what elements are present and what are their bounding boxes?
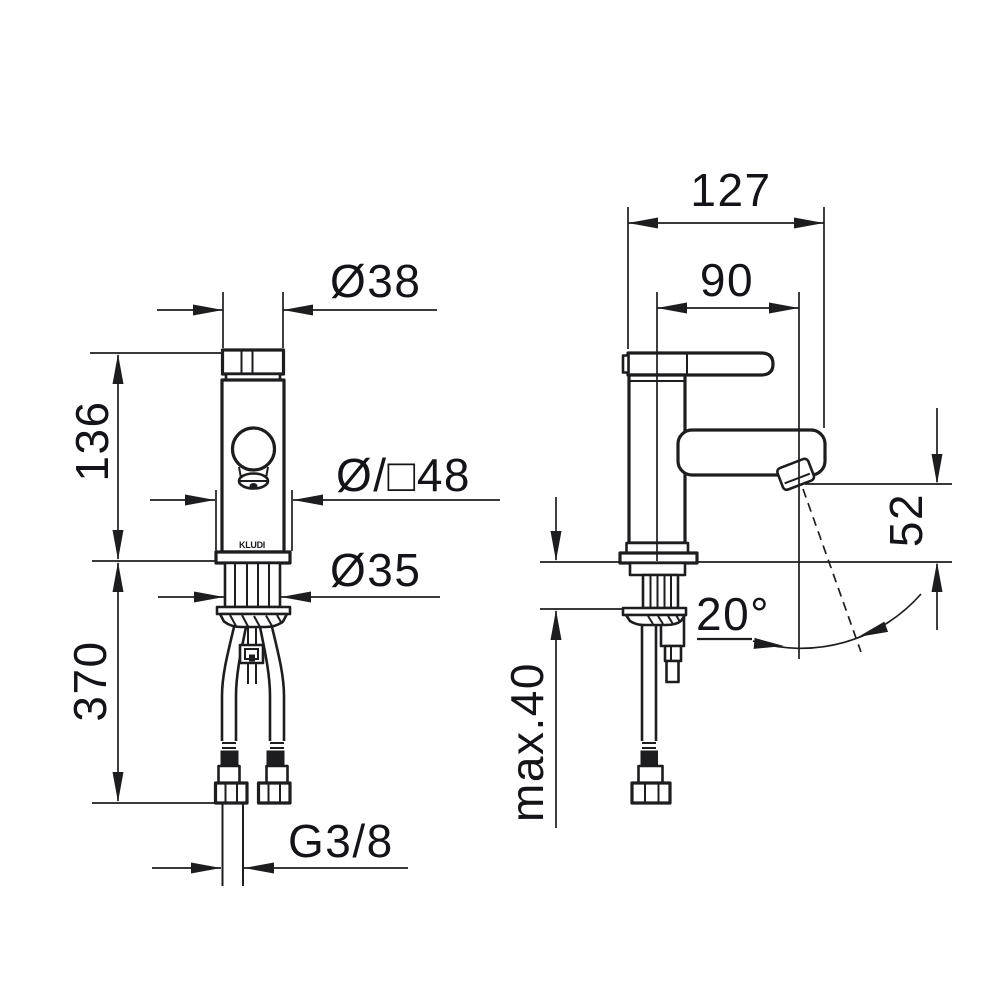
dimension-label: Ø38: [330, 255, 421, 307]
valve-stud-notch: [250, 655, 255, 661]
arrowhead: [113, 562, 124, 592]
threaded-shank-side: [643, 575, 678, 608]
arrowhead: [794, 218, 824, 229]
hose-crimp-band: [221, 751, 238, 766]
brand-logo: KLUDI: [239, 540, 265, 550]
technical-drawing: KLUDI: [0, 0, 1000, 1000]
arrowhead: [932, 562, 943, 592]
hose-crimp-band: [641, 751, 658, 766]
arrowhead: [193, 305, 223, 316]
hose-connector: [219, 766, 240, 783]
dim-upper-height: 136: [66, 353, 221, 561]
dimension-label: 20°: [696, 588, 770, 640]
arrowhead: [932, 454, 943, 484]
arrowhead: [283, 305, 313, 316]
hex-nut: [259, 783, 291, 803]
dimension-label: Ø/□48: [336, 449, 471, 501]
arrowhead: [113, 530, 124, 560]
dim-spout-reach: 90: [657, 254, 799, 314]
angle-arc: [753, 594, 921, 648]
dim-cap-diameter: Ø38: [157, 255, 437, 348]
drawing-canvas: KLUDI: [0, 0, 1000, 1000]
dim-outlet-height: 52: [805, 408, 952, 630]
dim-max-deck-thickness: max.40: [501, 497, 622, 828]
mounting-stud-step: [665, 646, 681, 661]
supply-hose: [272, 627, 284, 741]
arrowhead: [191, 863, 221, 874]
arrowhead: [113, 354, 124, 384]
dimension-label: 127: [690, 164, 771, 216]
arrowhead: [293, 495, 323, 506]
front-view: KLUDI: [64, 255, 500, 886]
arrowhead: [657, 303, 687, 314]
arrowhead: [856, 622, 888, 643]
hose-connector: [267, 766, 288, 783]
arrowhead: [551, 610, 562, 640]
dimension-label: max.40: [501, 662, 553, 822]
dimension-label: Ø35: [330, 544, 421, 596]
hex-nut: [632, 783, 670, 803]
arrowhead: [551, 531, 562, 561]
knob-notch: [250, 484, 257, 489]
dimension-label: 370: [64, 640, 116, 721]
dimension-label: G3/8: [288, 815, 394, 867]
lever-end-cap: [623, 356, 629, 373]
dimension-label: 52: [880, 493, 932, 547]
threaded-shank: [225, 563, 280, 607]
dim-body-cross-section: Ø/□48: [150, 449, 500, 551]
side-view: 127 90 52 max.40: [501, 164, 952, 828]
arrowhead: [194, 592, 224, 603]
base-plate-side: [620, 553, 697, 563]
dimension-label: 136: [66, 400, 118, 481]
dim-connection-thread: G3/8: [152, 815, 408, 874]
hose-crimp-band: [267, 751, 284, 766]
base-block: [630, 563, 685, 575]
arrowhead: [113, 772, 124, 802]
arrowhead: [281, 592, 311, 603]
arrowhead: [628, 218, 658, 229]
front-faucet: KLUDI: [216, 350, 291, 886]
base-plate: [216, 552, 290, 563]
dimension-label: 90: [700, 254, 754, 306]
control-ball: [233, 428, 275, 470]
hex-nut: [216, 783, 248, 803]
dim-outlet-angle: 20°: [696, 588, 921, 651]
arrowhead: [769, 303, 799, 314]
lever-handle: [628, 353, 773, 375]
mounting-stud-end: [667, 661, 679, 682]
dim-shank-diameter: Ø35: [158, 544, 440, 603]
side-faucet: [620, 353, 825, 803]
supply-hose: [222, 627, 234, 741]
hose-connector: [639, 766, 663, 783]
water-stream-line: [803, 489, 861, 652]
arrowhead: [185, 495, 215, 506]
dim-hose-length: 370: [64, 562, 215, 803]
arrowhead: [244, 863, 274, 874]
